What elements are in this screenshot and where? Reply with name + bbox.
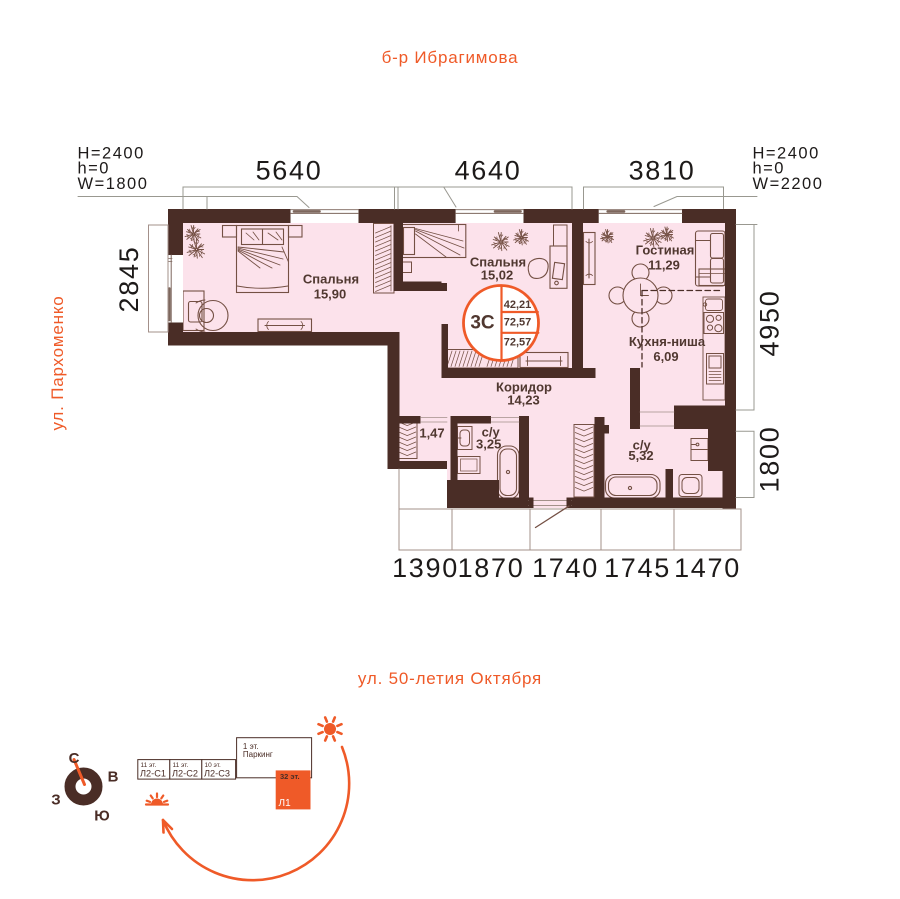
svg-text:1800: 1800: [755, 426, 785, 493]
svg-text:С: С: [69, 750, 80, 767]
svg-text:1470: 1470: [674, 553, 741, 583]
svg-text:Л1: Л1: [279, 798, 292, 809]
svg-text:4950: 4950: [755, 290, 785, 357]
svg-text:72,57: 72,57: [504, 317, 532, 329]
svg-text:4640: 4640: [455, 156, 522, 186]
svg-text:W=1800: W=1800: [78, 175, 149, 193]
svg-text:Л2-С1: Л2-С1: [140, 769, 166, 779]
svg-text:1745: 1745: [604, 553, 671, 583]
svg-text:В: В: [108, 769, 119, 786]
svg-text:1740: 1740: [532, 553, 599, 583]
svg-text:3810: 3810: [629, 156, 696, 186]
svg-text:ул. 50-летия Октября: ул. 50-летия Октября: [358, 669, 542, 688]
svg-text:Л2-С3: Л2-С3: [204, 769, 230, 779]
svg-text:Спальня: Спальня: [303, 272, 359, 287]
svg-text:11,29: 11,29: [648, 258, 680, 273]
svg-text:З: З: [51, 792, 60, 809]
svg-text:15,02: 15,02: [481, 268, 514, 283]
svg-text:ул. Пархоменко: ул. Пархоменко: [48, 295, 67, 430]
svg-text:14,23: 14,23: [507, 393, 540, 408]
svg-text:1,47: 1,47: [419, 426, 444, 441]
svg-text:6,09: 6,09: [653, 349, 678, 364]
svg-text:Паркинг: Паркинг: [243, 750, 273, 759]
svg-text:5640: 5640: [256, 156, 323, 186]
svg-text:42,21: 42,21: [504, 299, 532, 311]
svg-text:Гостиная: Гостиная: [636, 243, 695, 258]
svg-text:1390: 1390: [392, 553, 459, 583]
svg-text:3,25: 3,25: [476, 437, 501, 452]
svg-text:72,57: 72,57: [504, 337, 532, 349]
svg-text:32 эт.: 32 эт.: [280, 772, 300, 781]
svg-text:1870: 1870: [458, 553, 525, 583]
svg-text:2845: 2845: [114, 246, 144, 313]
svg-text:5,32: 5,32: [628, 448, 653, 463]
svg-text:3С: 3С: [470, 313, 495, 334]
svg-text:Кухня-ниша: Кухня-ниша: [629, 334, 706, 349]
svg-text:б-р Ибрагимова: б-р Ибрагимова: [382, 48, 519, 67]
svg-text:Л2-С2: Л2-С2: [172, 769, 198, 779]
svg-text:Ю: Ю: [94, 808, 109, 825]
svg-text:15,90: 15,90: [314, 287, 347, 302]
svg-text:W=2200: W=2200: [753, 175, 824, 193]
